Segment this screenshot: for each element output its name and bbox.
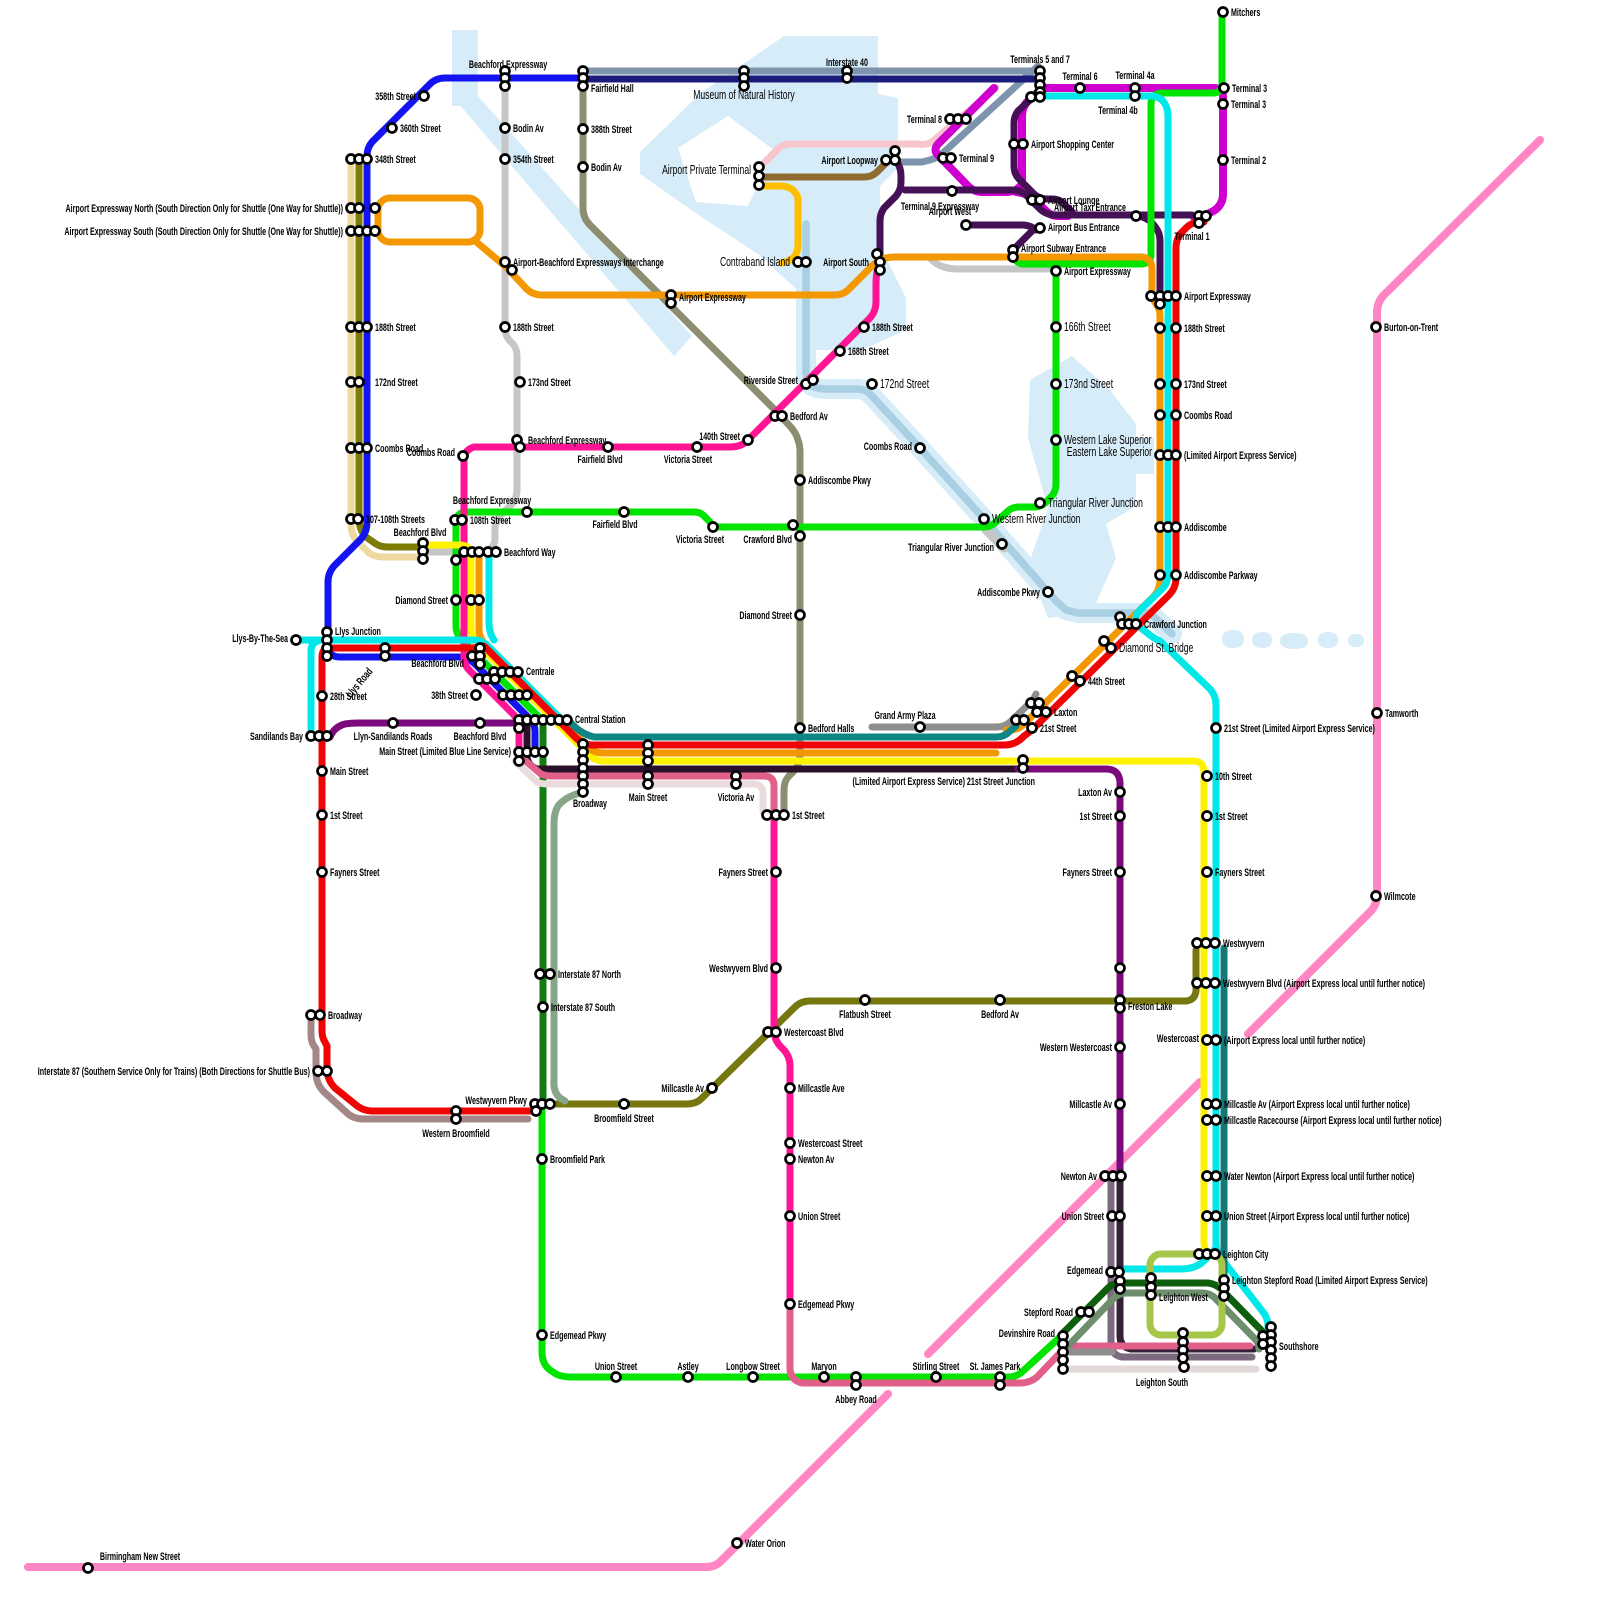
svg-text:Victoria Street: Victoria Street — [676, 534, 724, 546]
svg-text:Diamond St. Bridge: Diamond St. Bridge — [1119, 641, 1193, 655]
svg-text:Crawford Junction: Crawford Junction — [1144, 619, 1207, 631]
svg-text:Coombs Road: Coombs Road — [407, 447, 455, 459]
svg-text:St. James Park: St. James Park — [970, 1361, 1021, 1373]
svg-text:172nd Street: 172nd Street — [880, 377, 929, 391]
svg-text:Leighton West: Leighton West — [1159, 1292, 1208, 1304]
svg-text:Airport Taxi Entrance: Airport Taxi Entrance — [1054, 202, 1126, 214]
svg-text:168th Street: 168th Street — [848, 346, 889, 358]
svg-text:188th Street: 188th Street — [375, 322, 416, 334]
svg-text:Terminal 2: Terminal 2 — [1231, 155, 1266, 167]
svg-text:Leighton Stepford Road (Limite: Leighton Stepford Road (Limited Airport … — [1232, 1275, 1428, 1287]
svg-text:Airport Private Terminal: Airport Private Terminal — [662, 163, 751, 177]
svg-text:Fayners Street: Fayners Street — [1215, 867, 1264, 879]
svg-text:Tamworth: Tamworth — [1385, 708, 1419, 720]
svg-text:1st Street: 1st Street — [1080, 811, 1112, 823]
svg-text:Central Station: Central Station — [575, 714, 626, 726]
svg-text:Southshore: Southshore — [1279, 1341, 1319, 1353]
svg-text:Crawford Blvd: Crawford Blvd — [743, 534, 792, 546]
svg-text:Birmingham New Street: Birmingham New Street — [100, 1551, 180, 1563]
svg-text:Riverside Street: Riverside Street — [744, 375, 798, 387]
svg-text:Broomfield Street: Broomfield Street — [594, 1113, 654, 1125]
svg-text:21st Street (Limited Airport E: 21st Street (Limited Airport Express Ser… — [1224, 723, 1375, 735]
svg-text:Interstate 87 (Southern Servic: Interstate 87 (Southern Service Only for… — [38, 1066, 310, 1078]
svg-text:Airport Expressway North (Sout: Airport Expressway North (South Directio… — [66, 203, 343, 215]
svg-text:Bedford Halls: Bedford Halls — [808, 723, 854, 735]
svg-text:Terminal 9: Terminal 9 — [959, 153, 994, 165]
svg-text:Beachford Expressway: Beachford Expressway — [469, 59, 548, 71]
svg-text:Fairfield Blvd: Fairfield Blvd — [577, 454, 622, 466]
svg-text:Beachford Way: Beachford Way — [504, 547, 556, 559]
svg-text:Airport Shopping Center: Airport Shopping Center — [1031, 139, 1114, 151]
svg-text:Westwyvern Pkwy: Westwyvern Pkwy — [465, 1095, 527, 1107]
svg-text:Eastern Lake Superior: Eastern Lake Superior — [1067, 445, 1153, 459]
svg-text:Diamond Street: Diamond Street — [395, 595, 448, 607]
svg-text:10th Street: 10th Street — [1215, 771, 1252, 783]
svg-text:Freston Lake: Freston Lake — [1128, 1001, 1172, 1013]
svg-text:Airport Subway Entrance: Airport Subway Entrance — [1021, 243, 1106, 255]
svg-text:Westercoast Street: Westercoast Street — [798, 1138, 862, 1150]
svg-text:173nd Street: 173nd Street — [1184, 379, 1227, 391]
svg-text:Terminal 4a: Terminal 4a — [1115, 70, 1155, 82]
svg-text:Addiscombe Parkway: Addiscombe Parkway — [1184, 570, 1258, 582]
svg-text:Centrale: Centrale — [526, 666, 554, 678]
svg-text:Bedford Av: Bedford Av — [981, 1009, 1020, 1021]
svg-text:Stepford Road: Stepford Road — [1024, 1307, 1073, 1319]
svg-text:Bedford Av: Bedford Av — [790, 411, 829, 423]
svg-text:(Airport Express local until f: (Airport Express local until further not… — [1224, 1035, 1365, 1047]
svg-text:Millcastle Ave: Millcastle Ave — [798, 1083, 845, 1095]
svg-text:Stirling Street: Stirling Street — [913, 1361, 960, 1373]
svg-text:Westwyvern Blvd: Westwyvern Blvd — [709, 963, 768, 975]
svg-text:Terminals 5 and 7: Terminals 5 and 7 — [1010, 54, 1070, 66]
svg-text:Airport-Beachford Expressways: Airport-Beachford Expressways Interchang… — [513, 257, 664, 269]
svg-text:Millcastle Racecourse (Airport: Millcastle Racecourse (Airport Express l… — [1224, 1115, 1442, 1127]
svg-text:358th Street: 358th Street — [375, 91, 416, 103]
svg-text:Beachford Blvd: Beachford Blvd — [454, 731, 507, 743]
svg-text:Llys Junction: Llys Junction — [335, 626, 381, 638]
svg-text:Leighton City: Leighton City — [1223, 1249, 1269, 1261]
svg-text:Union Street: Union Street — [1062, 1211, 1104, 1223]
svg-text:Triangular River Junction: Triangular River Junction — [908, 542, 994, 554]
svg-text:Maryon: Maryon — [811, 1361, 837, 1373]
svg-text:Broadway: Broadway — [573, 798, 608, 810]
svg-text:Mitchers: Mitchers — [1231, 7, 1260, 19]
svg-text:Diamond Street: Diamond Street — [739, 610, 792, 622]
svg-text:360th Street: 360th Street — [400, 123, 441, 135]
svg-text:Interstate 87 South: Interstate 87 South — [551, 1002, 615, 1014]
svg-text:107-108th Streets: 107-108th Streets — [366, 514, 425, 526]
svg-text:Western Westercoast: Western Westercoast — [1040, 1042, 1112, 1054]
svg-text:388th Street: 388th Street — [591, 124, 632, 136]
svg-text:Devinshire Road: Devinshire Road — [999, 1328, 1055, 1340]
svg-text:Terminal 3: Terminal 3 — [1232, 83, 1267, 95]
svg-text:Edgemead: Edgemead — [1067, 1265, 1103, 1277]
svg-text:Terminal 1: Terminal 1 — [1174, 231, 1209, 243]
svg-text:Abbey Road: Abbey Road — [835, 1394, 877, 1406]
svg-text:Triangular River Junction: Triangular River Junction — [1048, 496, 1143, 510]
svg-text:Airport Expressway: Airport Expressway — [679, 292, 747, 304]
svg-text:Airport Bus Entrance: Airport Bus Entrance — [1048, 222, 1120, 234]
svg-text:Longbow Street: Longbow Street — [726, 1361, 780, 1373]
svg-text:Western River Junction: Western River Junction — [992, 512, 1080, 526]
svg-text:Laxton Av: Laxton Av — [1078, 787, 1113, 799]
svg-text:Victoria Street: Victoria Street — [664, 454, 712, 466]
svg-text:Astley: Astley — [677, 1361, 699, 1373]
svg-text:348th Street: 348th Street — [375, 154, 416, 166]
svg-text:(Limited Airport Express Servi: (Limited Airport Express Service) 21st S… — [852, 776, 1035, 788]
svg-text:Beachford Expressway: Beachford Expressway — [453, 495, 532, 507]
svg-text:Airport Expressway: Airport Expressway — [1184, 291, 1252, 303]
svg-text:Water Newton (Airport Express: Water Newton (Airport Express local unti… — [1224, 1171, 1414, 1183]
svg-text:Beachford Blvd: Beachford Blvd — [411, 658, 464, 670]
svg-text:Bodin Av: Bodin Av — [513, 123, 544, 135]
svg-text:Terminal 3: Terminal 3 — [1231, 99, 1266, 111]
svg-text:Airport Loopway: Airport Loopway — [821, 155, 878, 167]
svg-text:173nd Street: 173nd Street — [528, 377, 571, 389]
svg-text:Leighton South: Leighton South — [1136, 1377, 1189, 1389]
svg-text:Airport West: Airport West — [929, 206, 972, 218]
svg-text:Westercoast: Westercoast — [1157, 1033, 1199, 1045]
svg-text:166th Street: 166th Street — [1064, 320, 1111, 334]
svg-text:Llys-By-The-Sea: Llys-By-The-Sea — [232, 633, 289, 645]
svg-text:Flatbush Street: Flatbush Street — [839, 1009, 891, 1021]
svg-text:Millcastle Av (Airport Express: Millcastle Av (Airport Express local unt… — [1224, 1099, 1410, 1111]
svg-text:Victoria Av: Victoria Av — [718, 792, 755, 804]
svg-text:Millcastle Av: Millcastle Av — [661, 1083, 704, 1095]
svg-text:Newton Av: Newton Av — [798, 1154, 835, 1166]
svg-text:354th Street: 354th Street — [513, 154, 554, 166]
svg-text:Westercoast Blvd: Westercoast Blvd — [784, 1027, 844, 1039]
svg-text:Main Street: Main Street — [629, 792, 667, 804]
svg-text:Coombs Road: Coombs Road — [864, 441, 912, 453]
svg-text:Sandilands Bay: Sandilands Bay — [250, 731, 304, 743]
svg-text:Beachford Blvd: Beachford Blvd — [394, 527, 447, 539]
svg-text:Union Street: Union Street — [798, 1211, 840, 1223]
svg-text:Main Street (Limited Blue Line: Main Street (Limited Blue Line Service) — [379, 746, 511, 758]
svg-text:173nd Street: 173nd Street — [1064, 377, 1113, 391]
svg-text:Millcastle Av: Millcastle Av — [1069, 1099, 1112, 1111]
svg-text:Edgemead Pkwy: Edgemead Pkwy — [798, 1299, 855, 1311]
svg-text:172nd Street: 172nd Street — [375, 377, 418, 389]
svg-text:Terminal 6: Terminal 6 — [1062, 71, 1097, 83]
svg-text:44th Street: 44th Street — [1088, 676, 1125, 688]
svg-text:Main Street: Main Street — [330, 766, 368, 778]
svg-text:Western Broomfield: Western Broomfield — [422, 1128, 490, 1140]
svg-text:Grand Army Plaza: Grand Army Plaza — [874, 710, 936, 722]
svg-text:Airport Expressway: Airport Expressway — [1064, 266, 1132, 278]
svg-text:140th Street: 140th Street — [699, 431, 740, 443]
svg-text:Fayners Street: Fayners Street — [1063, 867, 1112, 879]
svg-text:Fairfield Blvd: Fairfield Blvd — [592, 519, 637, 531]
svg-text:Interstate 40: Interstate 40 — [826, 57, 868, 69]
svg-text:Airport Expressway South (Sout: Airport Expressway South (South Directio… — [64, 226, 343, 238]
svg-text:Fayners Street: Fayners Street — [719, 867, 768, 879]
svg-text:Water Orion: Water Orion — [745, 1538, 786, 1550]
svg-text:Museum of Natural History: Museum of Natural History — [693, 88, 795, 102]
svg-text:Addiscombe Pkwy: Addiscombe Pkwy — [808, 475, 872, 487]
svg-text:Airport South: Airport South — [823, 257, 869, 269]
svg-text:28th Street: 28th Street — [330, 691, 367, 703]
svg-text:21st Street: 21st Street — [1040, 723, 1076, 735]
svg-text:Addiscombe Pkwy: Addiscombe Pkwy — [977, 587, 1041, 599]
svg-text:38th Street: 38th Street — [431, 690, 468, 702]
svg-text:Addiscombe: Addiscombe — [1184, 522, 1227, 534]
svg-text:188th Street: 188th Street — [872, 322, 913, 334]
svg-text:188th Street: 188th Street — [1184, 323, 1225, 335]
svg-text:188th Street: 188th Street — [513, 322, 554, 334]
svg-text:Interstate 87 North: Interstate 87 North — [558, 969, 621, 981]
svg-text:Edgemead Pkwy: Edgemead Pkwy — [550, 1330, 607, 1342]
svg-text:Westwyvern: Westwyvern — [1223, 938, 1265, 950]
svg-text:Coombs Road: Coombs Road — [1184, 410, 1232, 422]
svg-text:Broomfield Park: Broomfield Park — [550, 1154, 606, 1166]
svg-text:Beachford Expressway: Beachford Expressway — [528, 435, 607, 447]
svg-text:Union Street: Union Street — [595, 1361, 637, 1373]
svg-text:Fayners Street: Fayners Street — [330, 867, 379, 879]
svg-text:Terminal 8: Terminal 8 — [907, 114, 942, 126]
svg-text:Broadway: Broadway — [328, 1010, 363, 1022]
svg-text:Laxton: Laxton — [1054, 707, 1078, 719]
svg-text:1st Street: 1st Street — [792, 810, 824, 822]
svg-text:Fairfield Hall: Fairfield Hall — [591, 83, 634, 95]
svg-text:1st Street: 1st Street — [330, 810, 362, 822]
svg-text:Westwyvern Blvd (Airport Expre: Westwyvern Blvd (Airport Express local u… — [1223, 978, 1425, 990]
svg-text:Wilmcote: Wilmcote — [1384, 891, 1416, 903]
svg-text:Terminal 4b: Terminal 4b — [1098, 105, 1138, 117]
svg-text:Burton-on-Trent: Burton-on-Trent — [1384, 322, 1438, 334]
svg-text:(Limited Airport Express Servi: (Limited Airport Express Service) — [1184, 450, 1297, 462]
svg-text:Contraband Island: Contraband Island — [720, 255, 790, 269]
svg-text:Newton Av: Newton Av — [1061, 1171, 1098, 1183]
svg-text:Union Street (Airport Express: Union Street (Airport Express local unti… — [1224, 1211, 1410, 1223]
svg-text:Bodin Av: Bodin Av — [591, 162, 622, 174]
svg-text:1st Street: 1st Street — [1215, 811, 1247, 823]
svg-text:108th Street: 108th Street — [470, 515, 511, 527]
svg-text:Llyn-Sandilands Roads: Llyn-Sandilands Roads — [354, 731, 433, 743]
